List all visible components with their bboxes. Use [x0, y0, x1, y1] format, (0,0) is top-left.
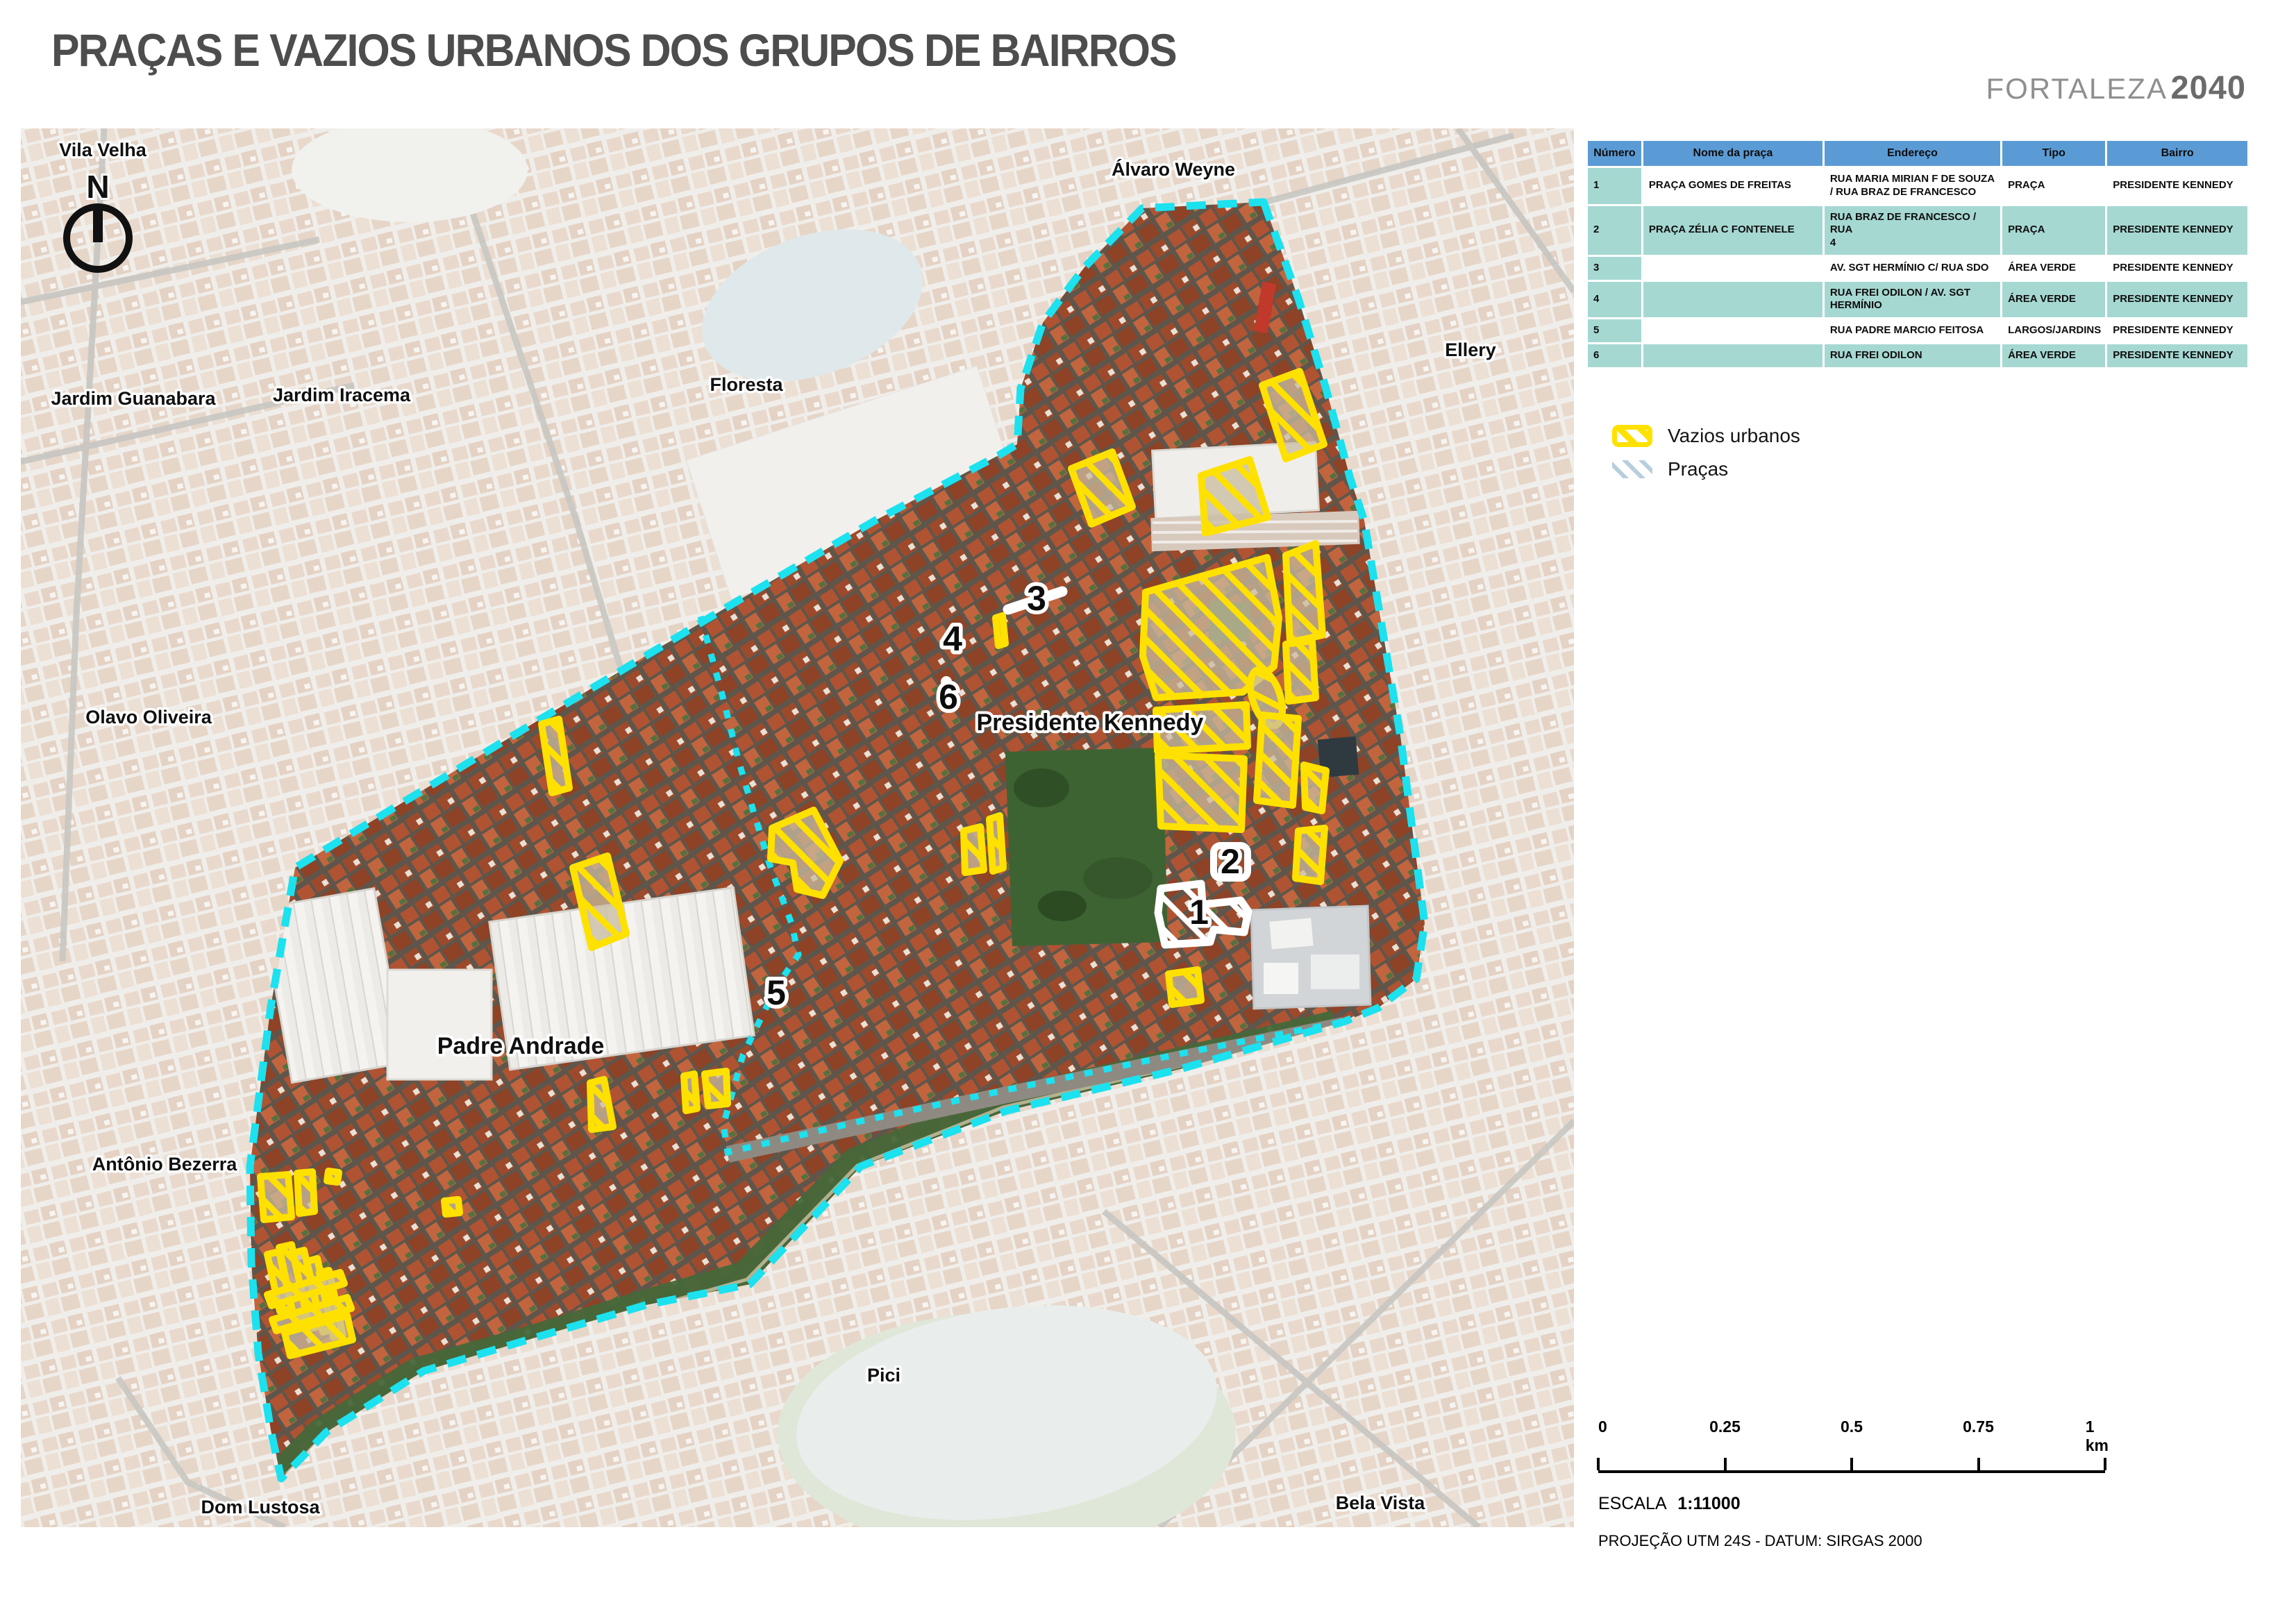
scale-tick-label: 0.25: [1709, 1418, 1741, 1436]
cell-bairro: PRESIDENTE KENNEDY: [2107, 168, 2247, 204]
map-svg: Vila VelhaÁlvaro WeyneFlorestaJardim Gua…: [21, 128, 1574, 1527]
page-title: PRAÇAS E VAZIOS URBANOS DOS GRUPOS DE BA…: [51, 24, 1176, 76]
bairro-label: Jardim Guanabara: [51, 388, 216, 409]
cell-endereco: RUA MARIA MIRIAN F DE SOUZA / RUA BRAZ D…: [1825, 168, 2000, 204]
scale-tick: [1597, 1458, 1600, 1470]
column-header: Bairro: [2107, 141, 2247, 166]
cell-numero: 5: [1588, 319, 1641, 342]
table-body: 1PRAÇA GOMES DE FREITASRUA MARIA MIRIAN …: [1588, 168, 2247, 367]
cell-tipo: LARGOS/JARDINS: [2002, 319, 2105, 342]
table-header-row: NúmeroNome da praçaEndereçoTipoBairro: [1588, 141, 2247, 166]
cell-tipo: PRAÇA: [2002, 206, 2105, 255]
vazio-urbano-outline: [1286, 544, 1323, 642]
scale-tick-labels: 00.250.50.751 km: [1598, 1418, 2105, 1438]
cell-nome: PRAÇA ZÉLIA C FONTENELE: [1643, 206, 1822, 255]
bairro-label: Bela Vista: [1336, 1492, 1426, 1513]
legend-label: Vazios urbanos: [1668, 425, 1800, 447]
cell-tipo: ÁREA VERDE: [2002, 282, 2105, 318]
cell-tipo: ÁREA VERDE: [2002, 344, 2105, 367]
bairro-label: Olavo Oliveira: [85, 707, 212, 728]
scale-tick: [1977, 1458, 1980, 1470]
cell-endereco: RUA PADRE MARCIO FEITOSA: [1825, 319, 2000, 342]
scale-tick-label: 1 km: [2086, 1418, 2109, 1455]
bairro-label: Dom Lustosa: [201, 1497, 320, 1517]
vazio-urbano-outline: [1168, 970, 1201, 1004]
scale-tick-label: 0.75: [1963, 1418, 1994, 1436]
cell-bairro: PRESIDENTE KENNEDY: [2107, 282, 2247, 318]
cell-endereco: RUA FREI ODILON / AV. SGT HERMÍNIO: [1825, 282, 2000, 318]
fortaleza-2040-logo: FORTALEZA 2040: [1986, 68, 2246, 106]
bairro-label: Presidente Kennedy: [977, 709, 1204, 736]
scale-bar-block: 00.250.50.751 km ESCALA 1:11000 PROJEÇÃO…: [1598, 1418, 2105, 1550]
cell-nome: PRAÇA GOMES DE FREITAS: [1643, 168, 1822, 204]
cell-numero: 6: [1588, 344, 1641, 367]
legend-item-pracas: Praças: [1612, 458, 1800, 480]
cell-numero: 2: [1588, 206, 1641, 255]
column-header: Endereço: [1825, 141, 2000, 166]
vazio-urbano-outline: [684, 1074, 697, 1111]
brand-year: 2040: [2170, 69, 2246, 106]
vazio-urbano-outline: [996, 616, 1005, 646]
scale-tick: [1724, 1458, 1727, 1470]
column-header: Nome da praça: [1643, 141, 1822, 166]
vazio-urbano-outline: [327, 1171, 339, 1182]
praca-number-marker: 6: [939, 678, 958, 716]
scale-tick-label: 0.5: [1841, 1418, 1863, 1436]
map-legend: Vazios urbanos Praças: [1612, 425, 1800, 491]
legend-label: Praças: [1668, 458, 1728, 480]
mall-complex: [1251, 906, 1371, 1009]
praca-number-marker: 3: [1027, 579, 1046, 618]
vazios-swatch-icon: [1612, 425, 1652, 447]
column-header: Tipo: [2002, 141, 2105, 166]
vazio-urbano-outline: [444, 1200, 460, 1214]
vazio-urbano-outline: [1257, 715, 1298, 805]
cell-tipo: ÁREA VERDE: [2002, 257, 2105, 280]
table-row: 1PRAÇA GOMES DE FREITASRUA MARIA MIRIAN …: [1588, 168, 2247, 204]
bairro-label: Jardim Iracema: [273, 385, 411, 405]
vazio-urbano-outline: [964, 827, 984, 873]
bairro-label: Antônio Bezerra: [92, 1154, 238, 1175]
cell-nome: [1643, 257, 1822, 280]
cell-nome: [1643, 344, 1822, 367]
big-box-store: [387, 970, 492, 1079]
scale-bar: [1598, 1456, 2105, 1473]
vazio-urbano-outline: [1286, 641, 1316, 701]
cell-numero: 3: [1588, 257, 1641, 280]
bairro-label: Ellery: [1445, 339, 1496, 360]
praca-number-marker: 5: [766, 973, 786, 1012]
bairro-label: Vila Velha: [59, 140, 147, 160]
bairro-label: Álvaro Weyne: [1112, 158, 1235, 180]
brand-name: FORTALEZA: [1986, 72, 2168, 105]
praca-number-marker: 4: [943, 619, 962, 658]
projection-text: PROJEÇÃO UTM 24S - DATUM: SIRGAS 2000: [1598, 1532, 2105, 1550]
table-row: 6RUA FREI ODILONÁREA VERDEPRESIDENTE KEN…: [1588, 344, 2247, 367]
bairro-label: Padre Andrade: [437, 1033, 605, 1059]
table-row: 3AV. SGT HERMÍNIO C/ RUA SDOÁREA VERDEPR…: [1588, 257, 2247, 280]
column-header: Número: [1588, 141, 1641, 166]
scale-tick-label: 0: [1598, 1418, 1607, 1436]
cell-endereco: RUA FREI ODILON: [1825, 344, 2000, 367]
cell-bairro: PRESIDENTE KENNEDY: [2107, 344, 2247, 367]
cell-nome: [1643, 319, 1822, 342]
satellite-map: Vila VelhaÁlvaro WeyneFlorestaJardim Gua…: [21, 128, 1574, 1527]
scale-tick: [1850, 1458, 1853, 1470]
cell-endereco: AV. SGT HERMÍNIO C/ RUA SDO: [1825, 257, 2000, 280]
cell-numero: 4: [1588, 282, 1641, 318]
bairro-label: Floresta: [710, 374, 783, 395]
escala-value: 1:11000: [1677, 1494, 1740, 1513]
vazio-urbano-outline: [1304, 765, 1326, 811]
scale-tick: [2104, 1458, 2106, 1470]
cell-endereco: RUA BRAZ DE FRANCESCO / RUA 4: [1825, 206, 2000, 255]
table-row: 5RUA PADRE MARCIO FEITOSALARGOS/JARDINSP…: [1588, 319, 2247, 342]
page: PRAÇAS E VAZIOS URBANOS DOS GRUPOS DE BA…: [0, 0, 2296, 1623]
vazio-urbano-outline: [297, 1172, 315, 1213]
cell-bairro: PRESIDENTE KENNEDY: [2107, 319, 2247, 342]
cell-bairro: PRESIDENTE KENNEDY: [2107, 206, 2247, 255]
scale-text: ESCALA 1:11000: [1598, 1494, 2105, 1514]
pracas-table: NúmeroNome da praçaEndereçoTipoBairro 1P…: [1586, 139, 2249, 369]
pracas-swatch-icon: [1612, 460, 1652, 478]
bairro-label: Pici: [867, 1365, 900, 1386]
cell-nome: [1643, 282, 1822, 318]
praca-number-marker: 1: [1189, 893, 1209, 932]
vazio-urbano-outline: [705, 1071, 728, 1106]
praca-number-marker: 2: [1221, 842, 1240, 881]
vazio-urbano-outline: [1158, 755, 1244, 830]
cell-tipo: PRAÇA: [2002, 168, 2105, 204]
table-row: 4RUA FREI ODILON / AV. SGT HERMÍNIOÁREA …: [1588, 282, 2247, 318]
cell-numero: 1: [1588, 168, 1641, 204]
escala-label: ESCALA: [1598, 1494, 1666, 1513]
vazio-urbano-outline: [1296, 828, 1325, 882]
compass-north-letter: N: [86, 169, 109, 205]
legend-item-vazios: Vazios urbanos: [1612, 425, 1800, 447]
vazio-urbano-outline: [989, 816, 1003, 871]
vazio-urbano-outline: [260, 1175, 292, 1220]
table-row: 2PRAÇA ZÉLIA C FONTENELERUA BRAZ DE FRAN…: [1588, 206, 2247, 255]
cell-bairro: PRESIDENTE KENNEDY: [2107, 257, 2247, 280]
